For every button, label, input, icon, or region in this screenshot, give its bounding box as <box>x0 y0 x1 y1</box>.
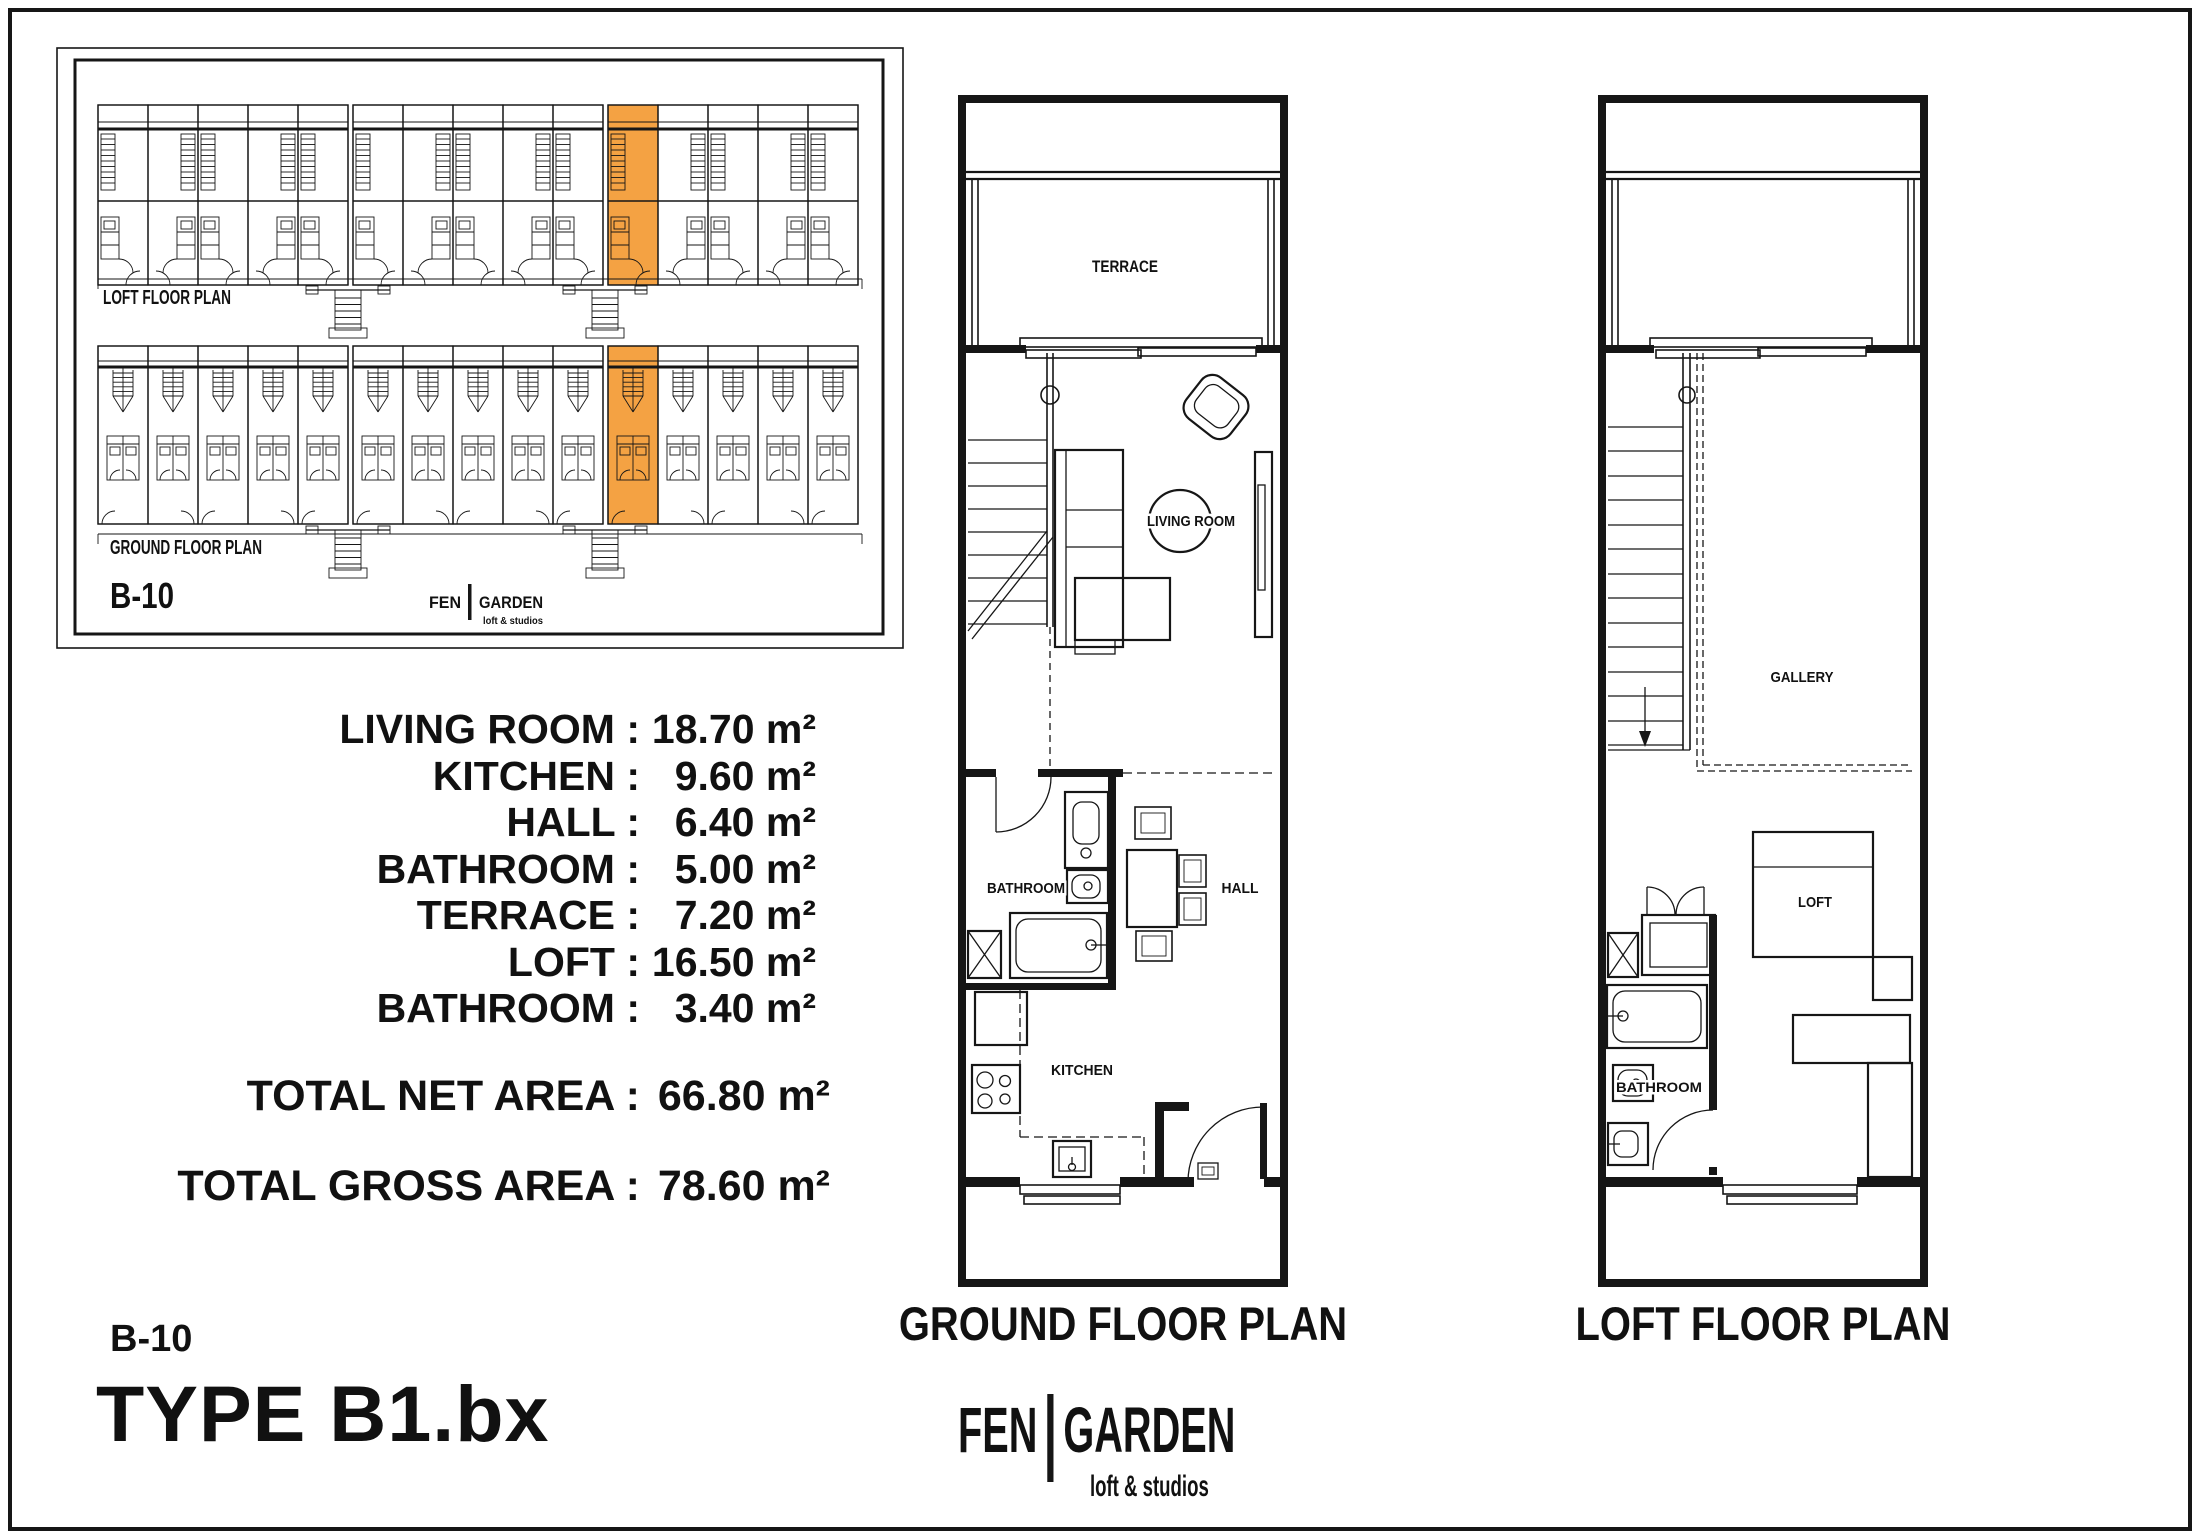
gallery-label: GALLERY <box>1771 669 1834 686</box>
area-row-label: LOFT : <box>170 939 640 986</box>
loft-label: LOFT <box>1798 894 1832 911</box>
ground-plan-title: GROUND FLOOR PLAN <box>885 1296 1361 1351</box>
area-row-value: 3.40 m² <box>640 985 816 1032</box>
total-gross-area-row: TOTAL GROSS AREA : 78.60 m² <box>170 1162 830 1211</box>
living-room-label: LIVING ROOM <box>1147 513 1235 530</box>
key-plan-svg: LOFT FLOOR PLAN GROUND FLOOR PLAN B-10 F… <box>55 46 905 650</box>
brand-right: GARDEN <box>1063 1398 1235 1462</box>
area-row-label: HALL : <box>170 799 640 846</box>
key-plan-unit-code: B-10 <box>110 575 174 616</box>
area-row-value: 9.60 m² <box>640 753 816 800</box>
key-plan-logo-bar <box>468 584 472 620</box>
total-gross-area-label: TOTAL GROSS AREA : <box>170 1162 640 1211</box>
area-row: KITCHEN :9.60 m² <box>170 753 830 800</box>
key-plan-loft-row-label: LOFT FLOOR PLAN <box>103 287 231 309</box>
area-row-value: 5.00 m² <box>640 846 816 893</box>
area-row-label: LIVING ROOM : <box>170 706 640 753</box>
area-row: HALL :6.40 m² <box>170 799 830 846</box>
total-net-area-value: 66.80 m² <box>640 1072 830 1121</box>
area-row-label: KITCHEN : <box>170 753 640 800</box>
brand-tagline: loft & studios <box>1090 1470 1209 1504</box>
unit-code: B-10 <box>110 1318 192 1361</box>
brand-logo: FEN GARDEN loft & studios <box>958 1398 1405 1504</box>
area-row: BATHROOM :3.40 m² <box>170 985 830 1032</box>
area-row-value: 6.40 m² <box>640 799 816 846</box>
area-row-label: BATHROOM : <box>170 846 640 893</box>
area-row: TERRACE :7.20 m² <box>170 892 830 939</box>
area-row-label: TERRACE : <box>170 892 640 939</box>
key-plan-logo-right: GARDEN <box>479 593 543 612</box>
drawing-sheet: LOFT FLOOR PLAN GROUND FLOOR PLAN B-10 F… <box>0 0 2200 1539</box>
key-plan-logo-left: FEN <box>429 593 461 612</box>
loft-floor-plan-svg: GALLERY LOFT BATHROOM <box>1598 95 1928 1287</box>
loft-plan-title: LOFT FLOOR PLAN <box>1525 1296 2001 1351</box>
total-net-area-label: TOTAL NET AREA : <box>170 1072 640 1121</box>
brand-left: FEN <box>958 1398 1037 1462</box>
brand-logo-row: FEN GARDEN loft & studios <box>958 1398 1235 1504</box>
area-row-label: BATHROOM : <box>170 985 640 1032</box>
brand-divider-bar <box>1047 1394 1053 1482</box>
brand-right-column: GARDEN loft & studios <box>1063 1398 1235 1504</box>
loft-bathroom-label: BATHROOM <box>1616 1079 1702 1095</box>
key-plan-ground-row-label: GROUND FLOOR PLAN <box>110 537 262 559</box>
area-row-value: 18.70 m² <box>640 706 816 753</box>
area-row-value: 16.50 m² <box>640 939 816 986</box>
ground-floor-plan-svg: TERRACE LIVING ROOM <box>958 95 1288 1287</box>
type-title: TYPE B1.bx <box>96 1368 549 1460</box>
area-table: LIVING ROOM :18.70 m² KITCHEN :9.60 m² H… <box>170 706 830 1032</box>
key-plan-logo-tagline: loft & studios <box>483 616 543 627</box>
terrace-label: TERRACE <box>1092 257 1158 276</box>
ground-plan-outer-wall <box>962 99 1284 1283</box>
area-row: LOFT :16.50 m² <box>170 939 830 986</box>
key-plan-units <box>98 105 862 578</box>
kitchen-label: KITCHEN <box>1051 1063 1113 1079</box>
loft-plan-outer-wall <box>1602 99 1924 1283</box>
ground-bathroom-label: BATHROOM <box>987 881 1065 897</box>
total-net-area-row: TOTAL NET AREA : 66.80 m² <box>170 1072 830 1121</box>
area-row-value: 7.20 m² <box>640 892 816 939</box>
area-row: LIVING ROOM :18.70 m² <box>170 706 830 753</box>
area-row: BATHROOM :5.00 m² <box>170 846 830 893</box>
total-gross-area-value: 78.60 m² <box>640 1162 830 1211</box>
hall-label: HALL <box>1222 881 1259 897</box>
